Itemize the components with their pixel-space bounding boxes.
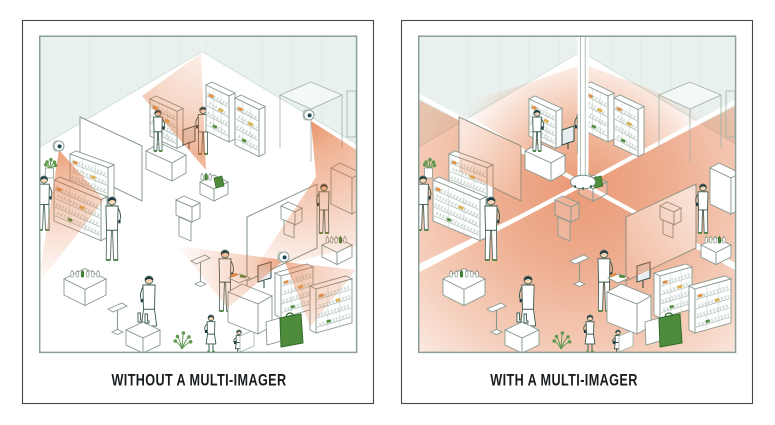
svg-text:WITHOUT A MULTI-IMAGER: WITHOUT A MULTI-IMAGER	[112, 372, 287, 390]
svg-text:WITH A MULTI-IMAGER: WITH A MULTI-IMAGER	[490, 372, 638, 390]
